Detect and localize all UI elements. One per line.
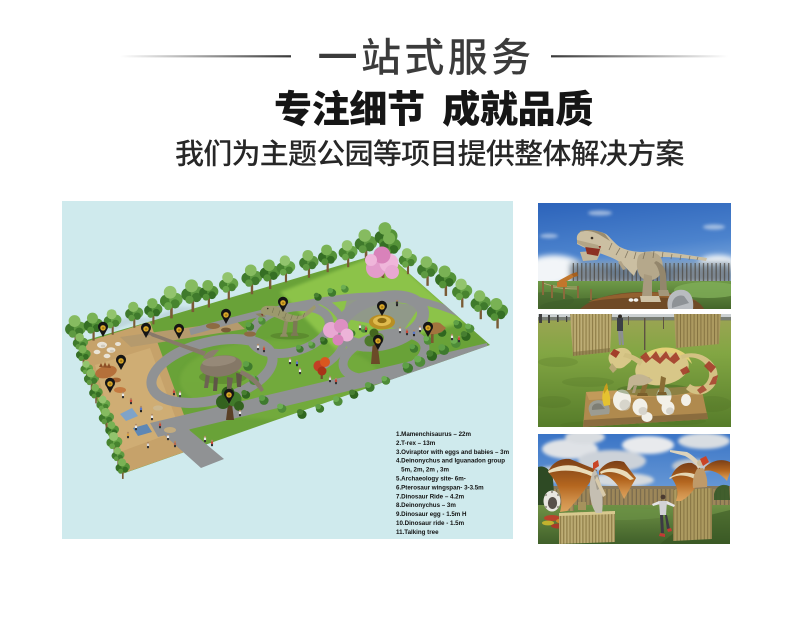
svg-text:7.Dinosaur Ride – 4.2m: 7.Dinosaur Ride – 4.2m — [396, 493, 465, 500]
svg-text:6.Pterosaur wingspan- 3-3.5m: 6.Pterosaur wingspan- 3-3.5m — [396, 484, 484, 491]
svg-text:5.Archaeology site- 6m-: 5.Archaeology site- 6m- — [396, 476, 466, 483]
svg-text:4.Deinonychus and Iguanadon gr: 4.Deinonychus and Iguanadon group — [396, 458, 505, 465]
svg-text:8.Deinonychus – 3m: 8.Deinonychus – 3m — [396, 502, 456, 509]
svg-text:5m, 2m, 2m , 3m: 5m, 2m, 2m , 3m — [396, 467, 449, 474]
svg-text:10.Dinosaur ride - 1.5m: 10.Dinosaur ride - 1.5m — [396, 520, 465, 527]
svg-text:1.Mamenchisaurus – 22m: 1.Mamenchisaurus – 22m — [396, 431, 471, 438]
svg-text:11.Talking tree: 11.Talking tree — [396, 529, 439, 536]
svg-text:3.Oviraptor with eggs and babi: 3.Oviraptor with eggs and babies – 3m — [396, 449, 510, 456]
svg-text:9.Dinosaur egg - 1.5m H: 9.Dinosaur egg - 1.5m H — [396, 511, 467, 518]
svg-text:2.T-rex – 13m: 2.T-rex – 13m — [396, 440, 436, 447]
